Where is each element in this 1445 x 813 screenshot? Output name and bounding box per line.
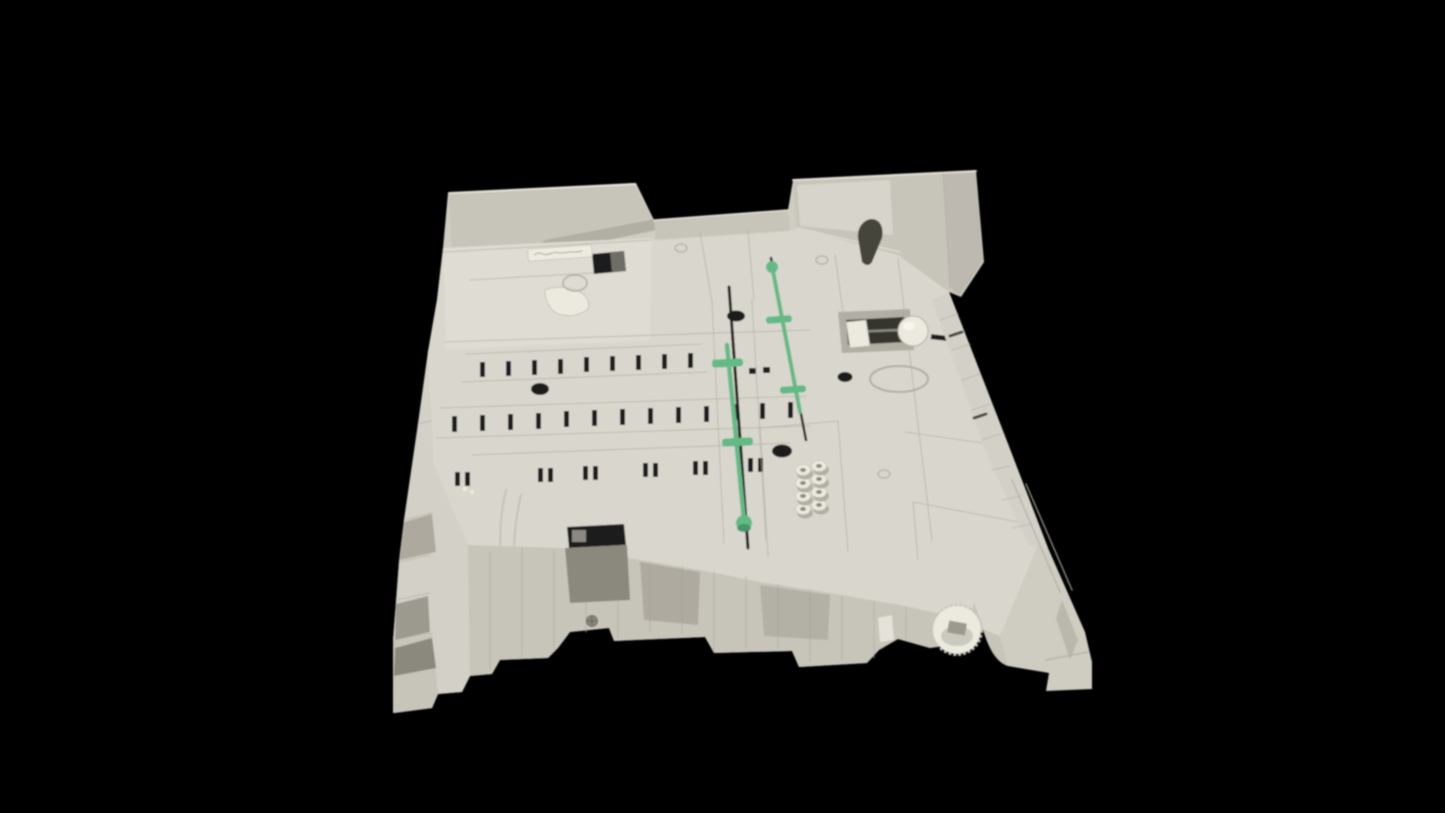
rect-hole	[592, 251, 626, 274]
molded-dot	[463, 487, 468, 492]
corner-roller-tab	[878, 615, 894, 642]
slider-handle	[712, 358, 743, 368]
underside-cavity	[565, 545, 630, 603]
slider-handle	[722, 437, 753, 447]
roller-ball	[898, 316, 928, 346]
cutout-slot	[567, 524, 626, 548]
molded-dot	[470, 490, 474, 494]
roller-bracket	[846, 320, 870, 348]
screw-head	[587, 616, 598, 627]
slider-knob	[766, 261, 778, 273]
printer-tray-photo	[0, 0, 1445, 813]
product-photo	[0, 0, 1445, 813]
feed-roller-assembly	[838, 309, 928, 353]
